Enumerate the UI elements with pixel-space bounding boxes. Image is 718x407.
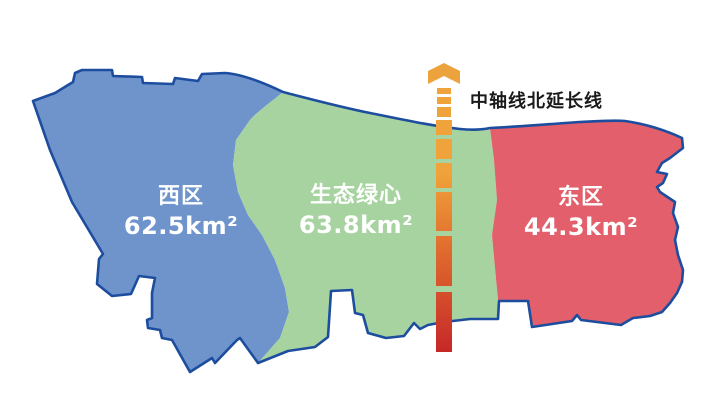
axis-label: 中轴线北延长线 — [470, 87, 603, 113]
district-map — [0, 0, 718, 407]
axis-dash — [436, 192, 452, 231]
central-axis-line — [436, 88, 452, 352]
axis-dash — [437, 97, 451, 104]
axis-dash — [436, 163, 452, 188]
axis-dash — [436, 292, 452, 352]
west-district-shape — [33, 70, 289, 372]
east-district-shape — [490, 121, 683, 327]
axis-dash — [436, 120, 452, 135]
axis-dash — [437, 107, 451, 117]
map-canvas: 西区 62.5km² 生态绿心 63.8km² 东区 44.3km² 中轴线北延… — [0, 0, 718, 407]
axis-dash — [437, 88, 451, 94]
axis-arrow-icon — [428, 63, 460, 84]
axis-dash — [436, 236, 452, 286]
axis-dash — [436, 139, 452, 159]
